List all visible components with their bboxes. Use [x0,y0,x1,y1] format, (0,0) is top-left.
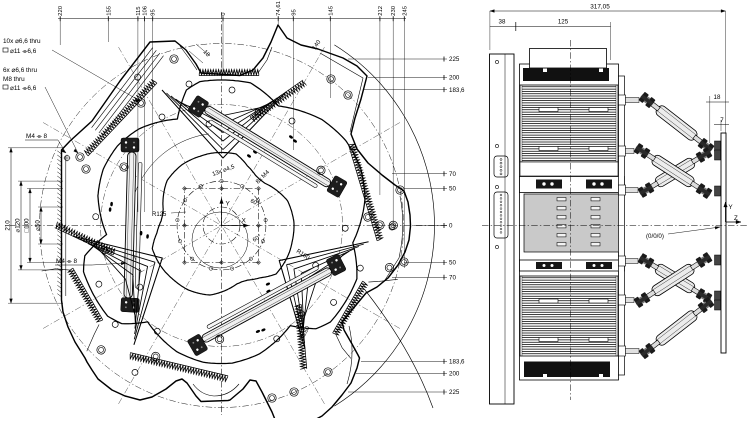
svg-text:200: 200 [449,371,460,378]
svg-text:70: 70 [449,275,456,282]
svg-text:Y: Y [226,201,231,208]
svg-text:R160: R160 [295,249,311,262]
svg-text:225: 225 [449,56,460,63]
svg-text:⌀11 ⌯6,6: ⌀11 ⌯6,6 [10,85,37,92]
svg-text:106: 106 [143,5,149,16]
svg-text:200: 200 [449,75,460,82]
svg-text:7: 7 [720,117,724,124]
svg-text:13x ⌀4,5: 13x ⌀4,5 [212,164,237,178]
svg-text:0: 0 [449,223,453,230]
svg-text:155: 155 [106,5,112,16]
svg-text:220: 220 [58,5,64,16]
svg-text:6x ⌀6,6 thru: 6x ⌀6,6 thru [3,67,37,74]
svg-text:230: 230 [391,5,397,16]
svg-text:0: 0 [221,12,227,16]
svg-text:60°: 60° [252,234,263,244]
svg-text:Z: Z [734,215,738,222]
svg-text:74,61: 74,61 [276,1,282,16]
svg-text:245: 245 [402,5,408,16]
svg-text:115: 115 [136,6,142,16]
svg-text:M4 ⌯ 8: M4 ⌯ 8 [26,133,48,140]
svg-text:183,6: 183,6 [449,359,465,366]
svg-text:Y: Y [729,204,733,211]
svg-text:95: 95 [291,9,297,16]
svg-text:□100: □100 [24,218,31,233]
svg-text:50: 50 [449,260,456,267]
svg-text:M8 thru: M8 thru [3,76,25,83]
svg-text:R125: R125 [152,212,167,218]
svg-text:38: 38 [499,19,506,26]
svg-text:140: 140 [312,39,323,51]
svg-text:M4 ⌯ 8: M4 ⌯ 8 [56,258,78,265]
svg-text:⌀120: ⌀120 [15,218,22,233]
svg-text:125: 125 [558,19,569,26]
svg-text:18: 18 [202,49,211,58]
svg-text:X: X [242,218,247,225]
svg-text:210: 210 [5,220,12,231]
svg-text:50: 50 [449,186,456,193]
svg-text:70: 70 [449,171,456,178]
svg-text:95: 95 [151,9,157,16]
svg-text:⌀50: ⌀50 [35,220,42,231]
svg-text:212: 212 [378,6,384,16]
svg-text:(0/0/0): (0/0/0) [646,233,664,240]
svg-text:145: 145 [328,5,334,16]
svg-text:10x ⌀6,6 thru: 10x ⌀6,6 thru [3,38,41,45]
svg-text:60°: 60° [249,198,259,207]
svg-text:183,6: 183,6 [449,87,465,94]
svg-text:225: 225 [449,389,460,396]
svg-text:⌀11 ⌯6,6: ⌀11 ⌯6,6 [10,48,37,55]
svg-text:317,05: 317,05 [590,4,610,11]
svg-text:18: 18 [714,94,721,101]
